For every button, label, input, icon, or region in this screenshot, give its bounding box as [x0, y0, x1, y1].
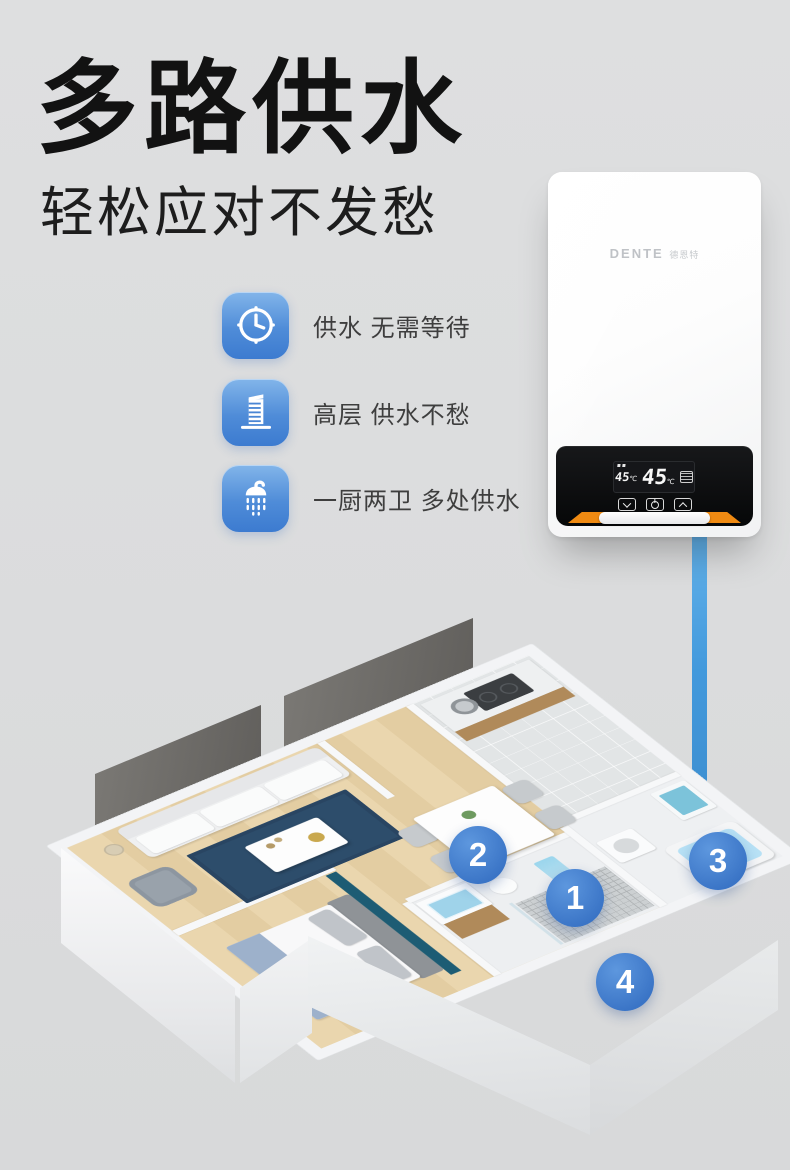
temperature-display: 45℃ 45℃ [613, 461, 695, 493]
brand-name: DENTE [610, 246, 664, 261]
power-button [646, 498, 664, 511]
control-panel: 45℃ 45℃ [556, 446, 753, 526]
page-title: 多路供水 [36, 56, 468, 163]
supply-point-marker-4: 4 [596, 953, 654, 1011]
shower-mode-icon [680, 471, 693, 483]
shower-icon [222, 465, 289, 532]
feature-row-instant-supply: 供水 无需等待 [222, 291, 471, 359]
touch-keys [556, 498, 753, 511]
outlet-temp-readout: 45℃ [641, 465, 677, 489]
supply-point-marker-1: 1 [546, 869, 604, 927]
feature-label: 供水 无需等待 [313, 308, 471, 343]
supply-point-marker-2: 2 [449, 826, 507, 884]
water-heater: DENTE 德恩特 45℃ 45℃ [548, 172, 761, 537]
water-supply-line [692, 534, 707, 784]
brand-logo: DENTE 德恩特 [548, 246, 761, 261]
power-icon [651, 501, 659, 509]
temp-up-button [674, 498, 692, 511]
feature-label: 一厨两卫 多处供水 [313, 481, 521, 516]
set-temp-readout: 45℃ [614, 470, 638, 484]
chevron-up-icon [678, 502, 686, 510]
feature-label: 高层 供水不愁 [313, 395, 471, 430]
status-dots [617, 464, 625, 467]
temp-down-button [618, 498, 636, 511]
chevron-down-icon [622, 499, 630, 507]
panel-handle [599, 512, 709, 524]
supply-point-marker-3: 3 [689, 832, 747, 890]
clock-icon [222, 292, 289, 359]
building-icon [222, 379, 289, 446]
promo-page: 多路供水 轻松应对不发愁 供水 无需等待 [0, 0, 790, 1170]
page-subtitle: 轻松应对不发愁 [40, 184, 439, 243]
feature-row-multi-outlet: 一厨两卫 多处供水 [222, 464, 521, 532]
feature-row-high-floor: 高层 供水不愁 [222, 378, 471, 446]
brand-name-cn: 德恩特 [669, 250, 699, 260]
